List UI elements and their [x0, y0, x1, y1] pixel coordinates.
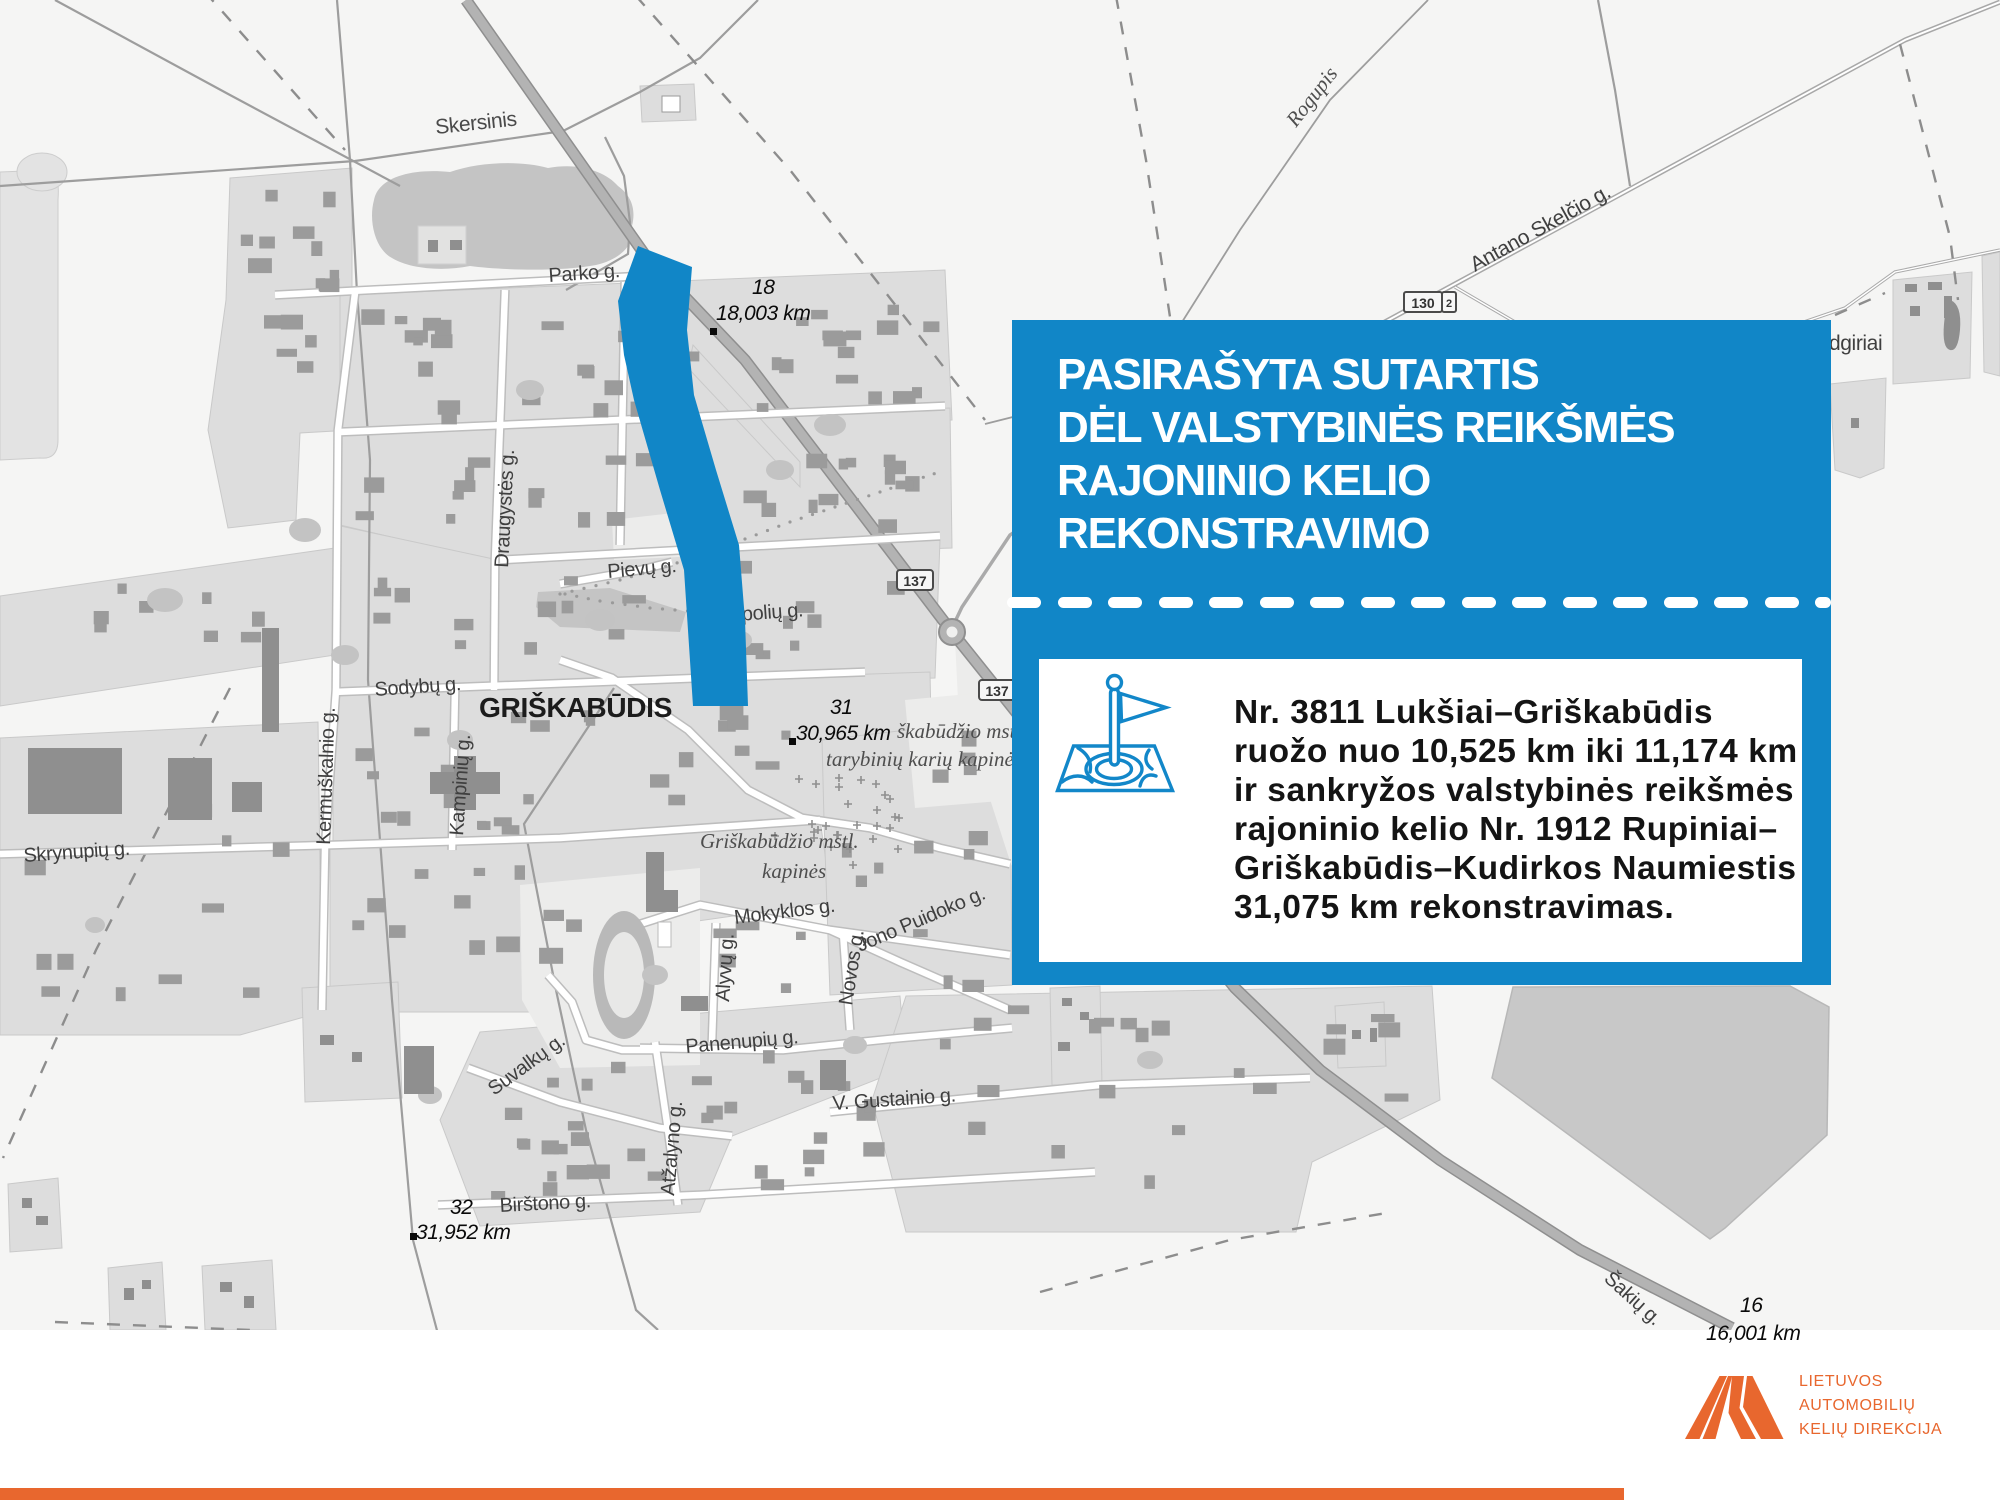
- svg-text:16,001 km: 16,001 km: [1706, 1322, 1800, 1345]
- svg-text:škabūdžio mstl.: škabūdžio mstl.: [897, 719, 1027, 743]
- svg-text:GRIŠKABŪDIS: GRIŠKABŪDIS: [479, 691, 672, 723]
- svg-text:18,003 km: 18,003 km: [716, 302, 810, 325]
- svg-text:Griškabūdžio mstl.: Griškabūdžio mstl.: [700, 829, 859, 853]
- svg-text:137: 137: [903, 573, 927, 589]
- svg-text:31,952 km: 31,952 km: [416, 1221, 510, 1244]
- svg-text:130: 130: [1411, 295, 1435, 311]
- svg-text:kapinės: kapinės: [762, 859, 826, 883]
- svg-text:2: 2: [1446, 298, 1452, 310]
- svg-text:tarybinių karių kapinės: tarybinių karių kapinės: [826, 747, 1022, 771]
- svg-text:31: 31: [830, 696, 853, 719]
- svg-text:32: 32: [450, 1196, 473, 1219]
- svg-text:18: 18: [752, 276, 775, 299]
- svg-text:137: 137: [985, 683, 1009, 699]
- svg-text:16: 16: [1740, 1294, 1763, 1317]
- svg-text:30,965 km: 30,965 km: [796, 722, 890, 745]
